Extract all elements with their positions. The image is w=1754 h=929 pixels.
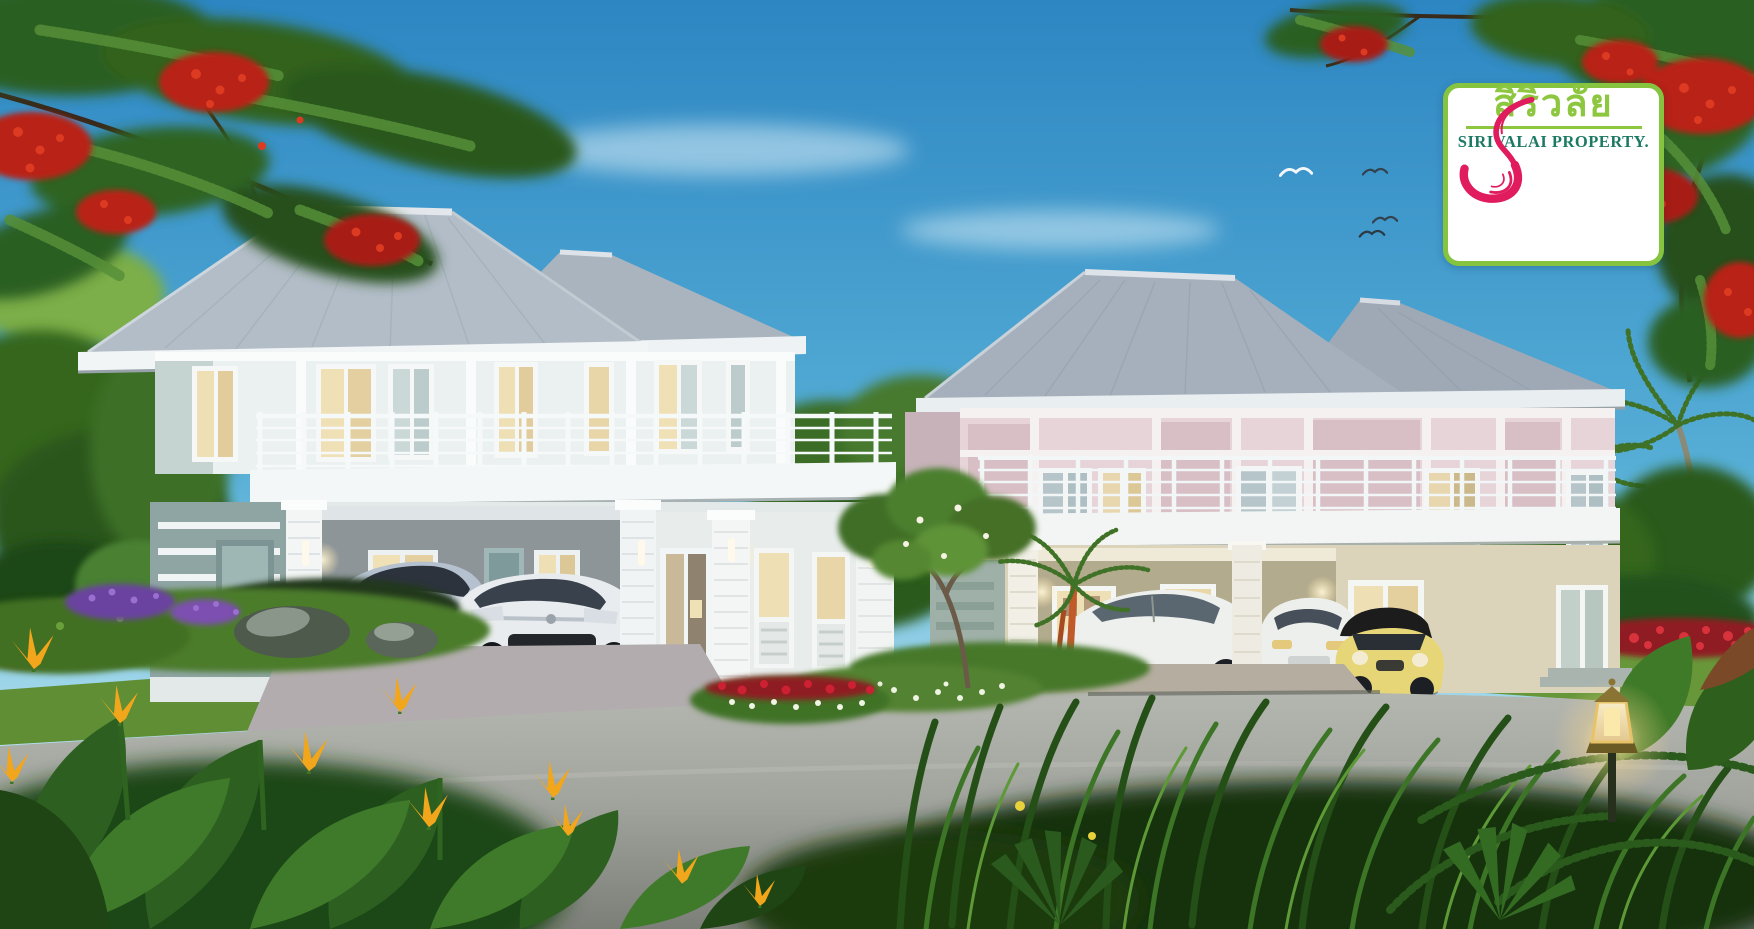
flowerbed-left-entrance [690, 676, 890, 724]
foreground-hedge-left [0, 578, 490, 674]
sirivalai-logo-card: สิริวลัย SIRIVALAI PROPERTY. [1443, 83, 1664, 266]
property-advert-image: สิริวลัย SIRIVALAI PROPERTY. [0, 0, 1754, 929]
sirivalai-swirl-icon [1448, 94, 1552, 206]
